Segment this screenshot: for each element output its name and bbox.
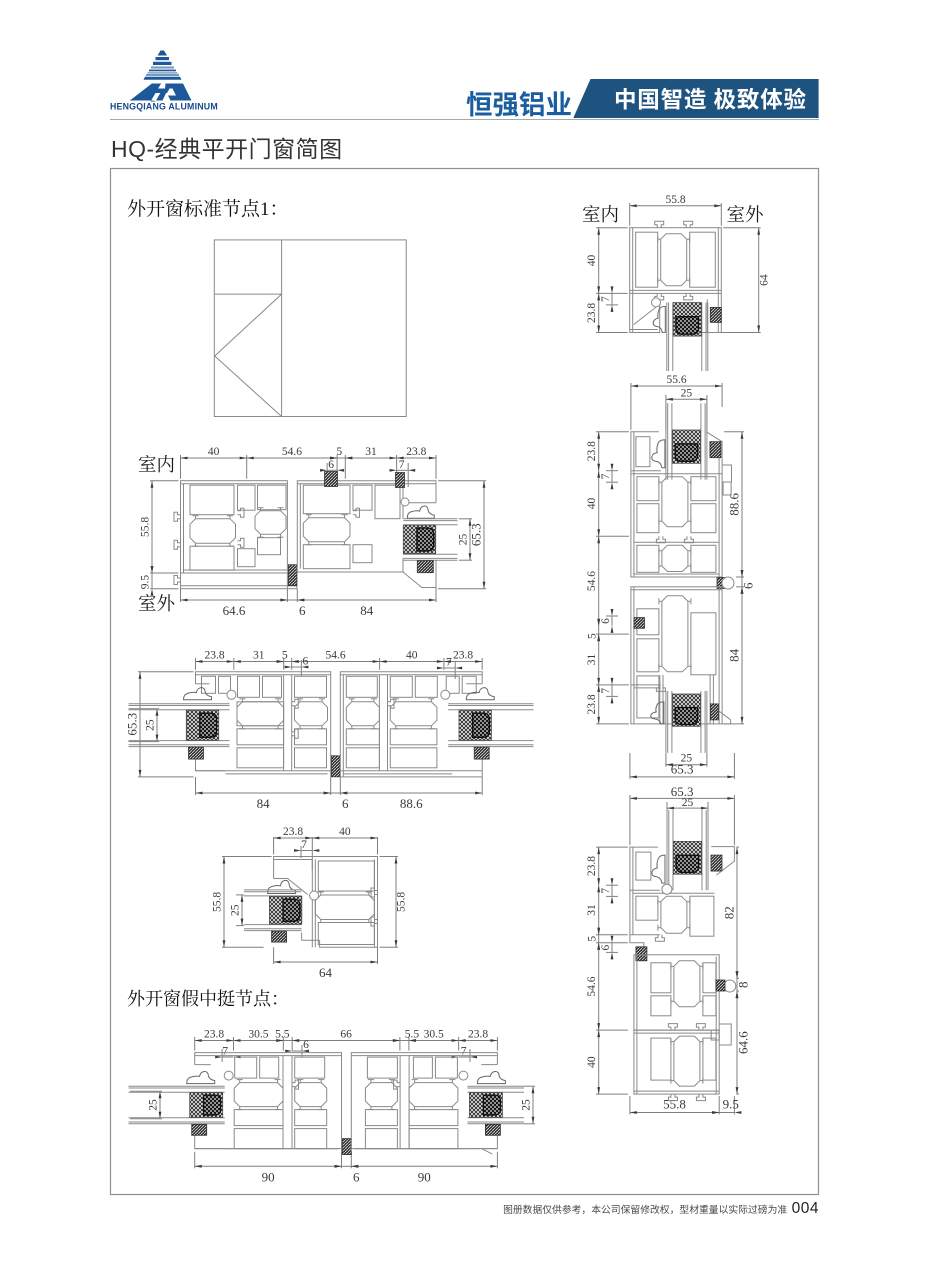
- svg-text:5.5: 5.5: [275, 1029, 290, 1041]
- svg-text:23.8: 23.8: [283, 826, 303, 838]
- svg-text:64: 64: [759, 274, 771, 286]
- svg-text:25: 25: [682, 797, 694, 809]
- svg-text:外开窗标准节点1：: 外开窗标准节点1：: [127, 194, 289, 221]
- svg-text:6: 6: [303, 656, 309, 668]
- svg-text:54.6: 54.6: [282, 446, 302, 458]
- svg-text:90: 90: [418, 1169, 431, 1184]
- svg-text:54.6: 54.6: [586, 571, 598, 591]
- svg-text:室外: 室外: [138, 590, 176, 616]
- svg-text:88.6: 88.6: [727, 493, 742, 516]
- svg-text:40: 40: [586, 498, 598, 510]
- svg-text:40: 40: [406, 650, 418, 662]
- svg-text:23.8: 23.8: [406, 446, 426, 458]
- svg-text:30.5: 30.5: [424, 1029, 444, 1041]
- svg-text:54.6: 54.6: [586, 976, 598, 996]
- svg-text:55.8: 55.8: [663, 1097, 686, 1112]
- svg-text:65.3: 65.3: [671, 761, 694, 776]
- svg-text:40: 40: [586, 1056, 598, 1068]
- svg-text:23.8: 23.8: [586, 441, 598, 461]
- svg-text:54.6: 54.6: [326, 650, 346, 662]
- svg-text:6: 6: [600, 618, 612, 624]
- svg-text:55.8: 55.8: [665, 194, 685, 206]
- svg-text:6: 6: [299, 603, 306, 618]
- svg-text:55.8: 55.8: [396, 892, 408, 912]
- svg-text:9.5: 9.5: [140, 575, 152, 590]
- svg-text:40: 40: [208, 446, 220, 458]
- svg-text:6: 6: [328, 459, 334, 471]
- svg-text:23.8: 23.8: [468, 1029, 488, 1041]
- svg-text:55.8: 55.8: [140, 517, 152, 537]
- svg-text:25: 25: [148, 1099, 160, 1111]
- svg-text:6: 6: [600, 944, 612, 950]
- svg-text:7: 7: [446, 657, 452, 669]
- svg-text:84: 84: [360, 603, 374, 618]
- svg-text:5: 5: [282, 650, 288, 662]
- svg-text:25: 25: [521, 1099, 533, 1111]
- svg-text:55.6: 55.6: [666, 374, 686, 386]
- svg-text:5: 5: [336, 446, 342, 458]
- svg-text:7: 7: [399, 459, 405, 471]
- svg-text:25: 25: [145, 719, 157, 731]
- svg-text:5.5: 5.5: [405, 1029, 420, 1041]
- svg-text:64: 64: [319, 965, 333, 980]
- svg-text:7: 7: [600, 473, 612, 479]
- svg-text:23.8: 23.8: [204, 1029, 224, 1041]
- svg-text:7: 7: [600, 888, 612, 894]
- svg-text:5: 5: [587, 633, 599, 639]
- svg-text:室内: 室内: [582, 201, 619, 227]
- svg-text:64.6: 64.6: [736, 1031, 751, 1054]
- svg-text:室外: 室外: [727, 201, 765, 227]
- svg-text:40: 40: [586, 255, 598, 267]
- svg-text:31: 31: [586, 654, 598, 666]
- svg-text:外开窗假中挺节点：: 外开窗假中挺节点：: [127, 985, 289, 1011]
- svg-text:9.5: 9.5: [723, 1097, 739, 1112]
- svg-text:6: 6: [353, 1169, 360, 1184]
- svg-text:6: 6: [342, 796, 349, 811]
- svg-text:8: 8: [736, 981, 751, 988]
- svg-text:31: 31: [586, 904, 598, 916]
- svg-text:55.8: 55.8: [212, 892, 224, 912]
- svg-text:室内: 室内: [138, 451, 175, 477]
- svg-text:6: 6: [303, 1039, 309, 1051]
- svg-text:23.8: 23.8: [586, 694, 598, 714]
- svg-text:84: 84: [257, 796, 271, 811]
- svg-text:65.3: 65.3: [469, 523, 484, 546]
- svg-text:30.5: 30.5: [248, 1029, 268, 1041]
- svg-text:88.6: 88.6: [400, 796, 423, 811]
- svg-text:7: 7: [600, 688, 612, 694]
- svg-text:64.6: 64.6: [223, 603, 246, 618]
- svg-text:84: 84: [727, 648, 742, 662]
- svg-text:23.8: 23.8: [586, 303, 598, 323]
- svg-text:31: 31: [253, 650, 265, 662]
- svg-text:25: 25: [681, 387, 693, 399]
- svg-text:6: 6: [741, 582, 756, 589]
- svg-text:90: 90: [262, 1169, 275, 1184]
- svg-text:66: 66: [340, 1029, 352, 1041]
- svg-text:7: 7: [600, 296, 612, 302]
- svg-text:25: 25: [230, 904, 242, 916]
- svg-text:40: 40: [339, 826, 351, 838]
- svg-text:82: 82: [722, 906, 737, 919]
- svg-text:23.8: 23.8: [453, 650, 473, 662]
- svg-text:23.8: 23.8: [586, 856, 598, 876]
- svg-text:7: 7: [301, 839, 307, 851]
- svg-text:5: 5: [587, 936, 599, 942]
- svg-text:31: 31: [365, 446, 377, 458]
- svg-text:65.3: 65.3: [125, 713, 140, 736]
- svg-text:23.8: 23.8: [205, 650, 225, 662]
